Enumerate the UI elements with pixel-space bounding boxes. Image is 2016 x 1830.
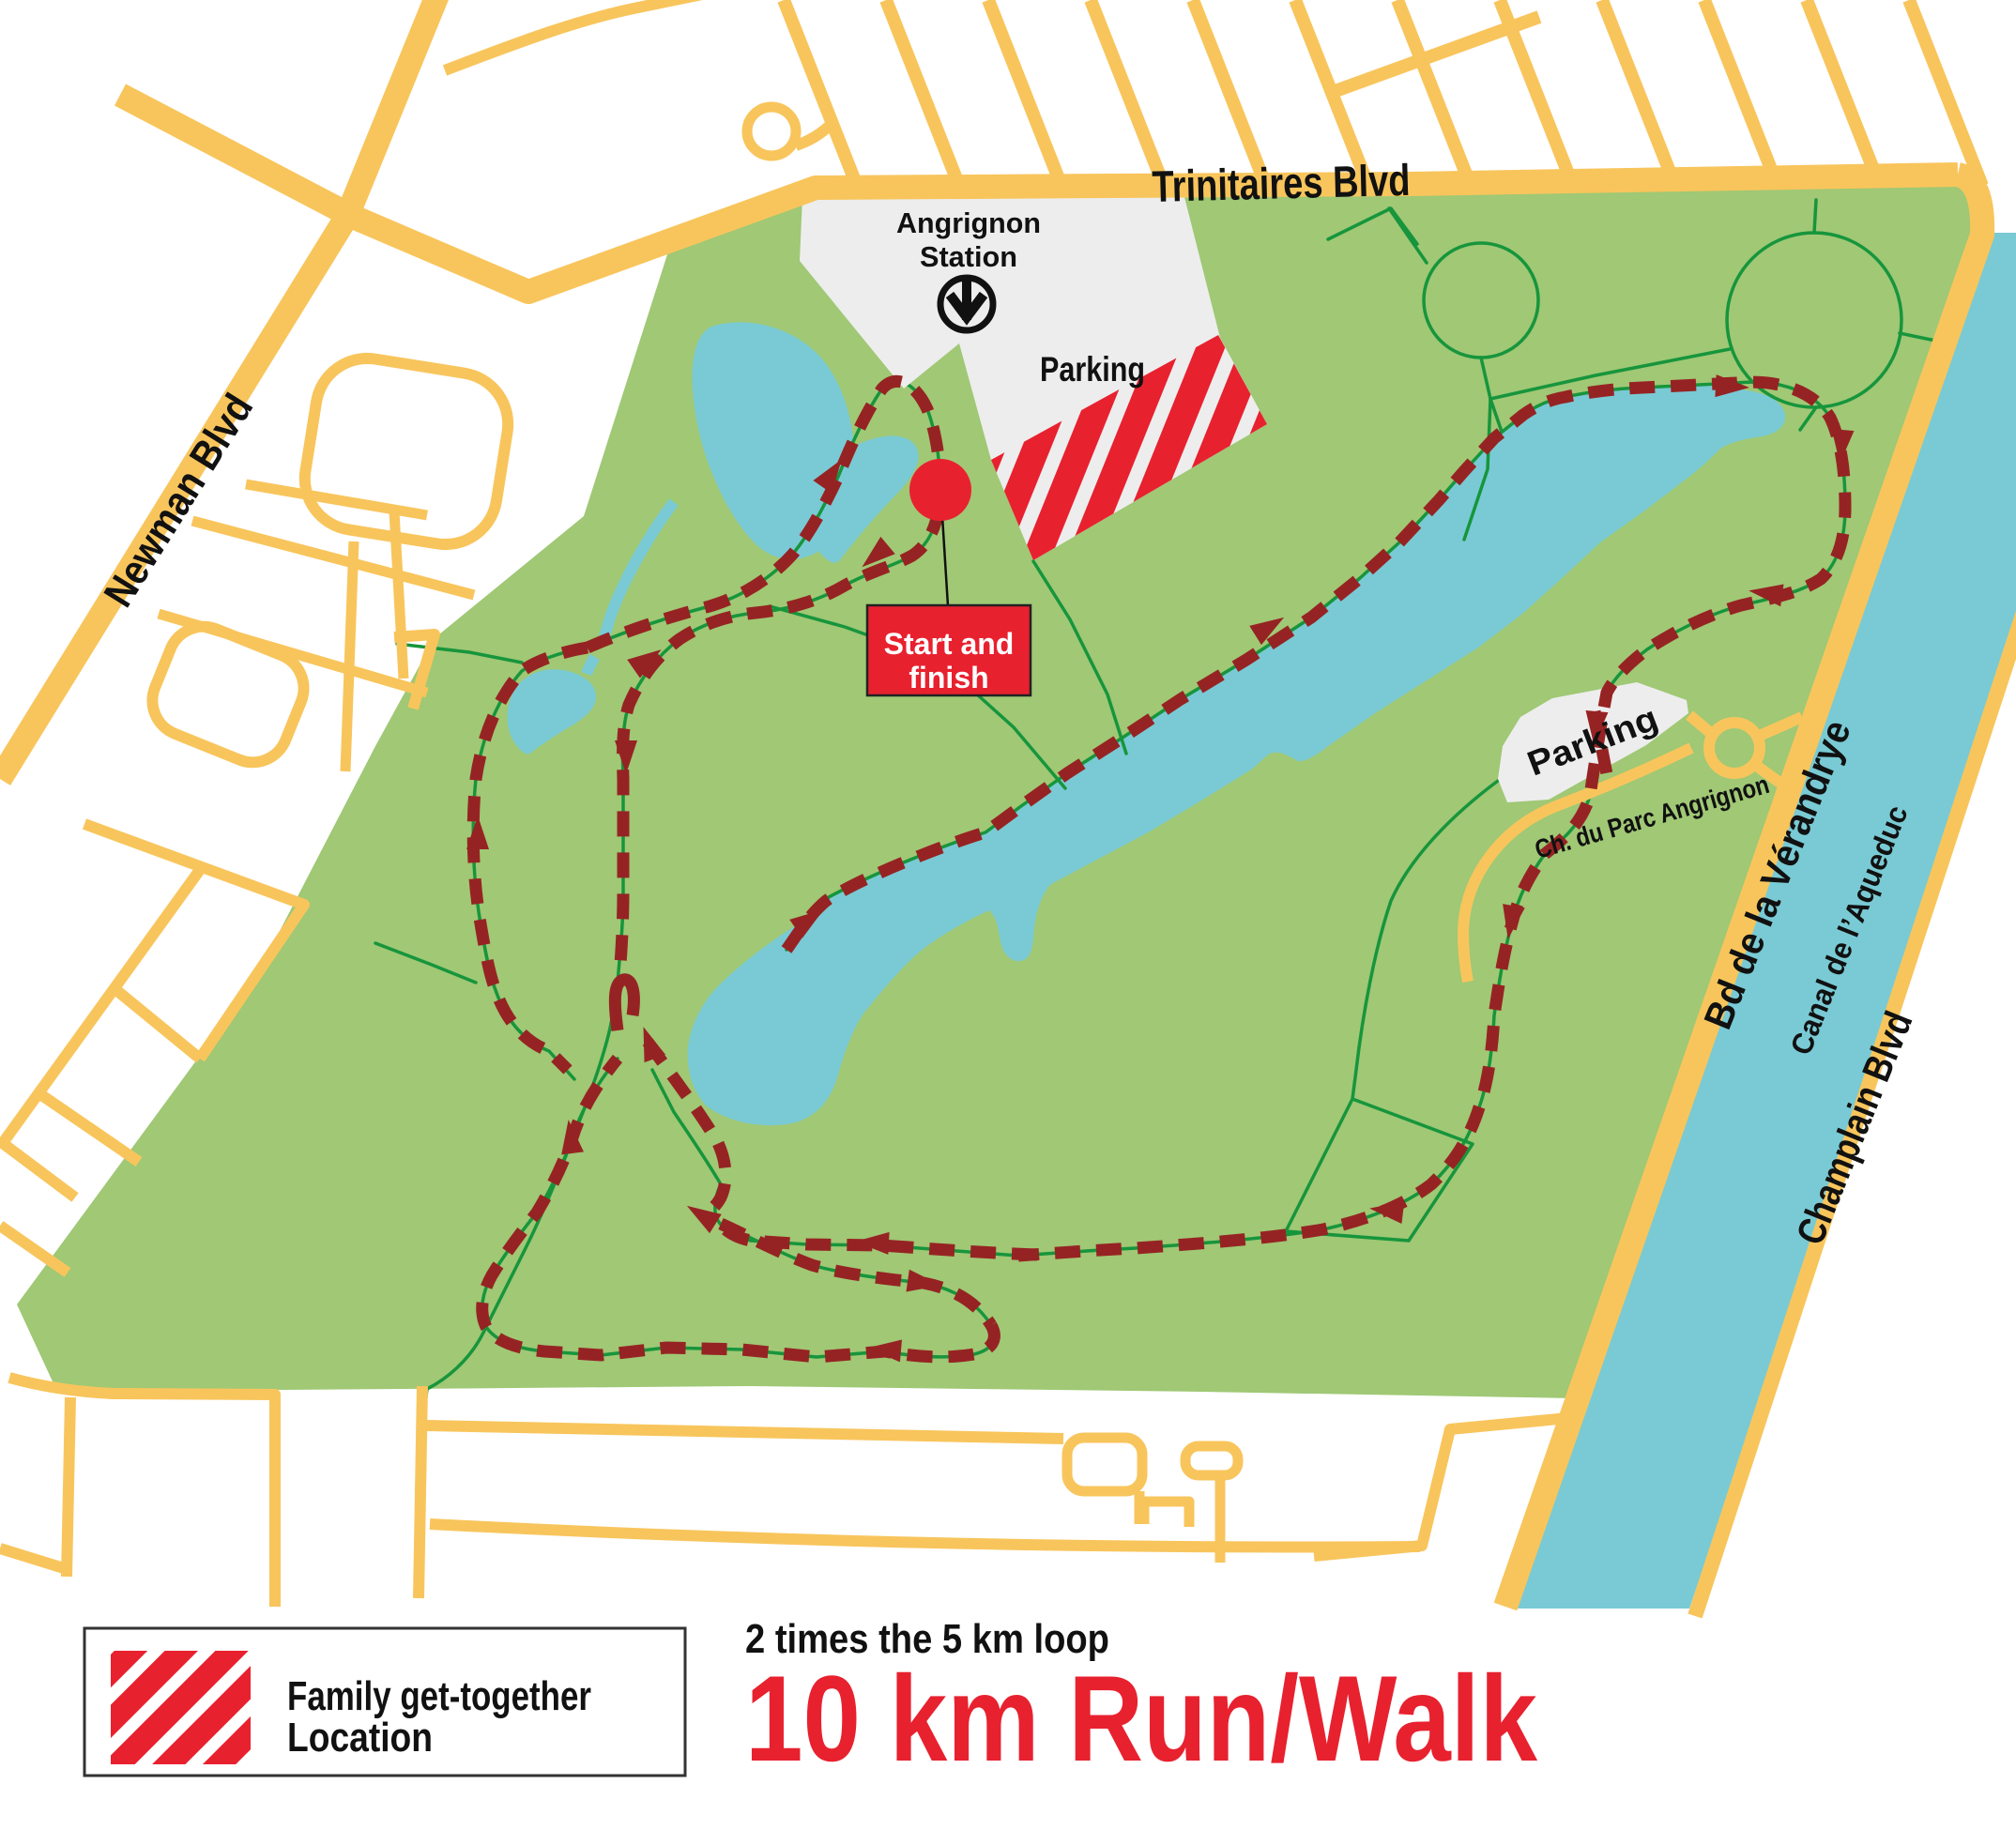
svg-text:Station: Station — [920, 240, 1017, 273]
svg-text:Start and: Start and — [884, 627, 1015, 661]
svg-text:Location: Location — [287, 1715, 433, 1761]
svg-text:10 km Run/Walk: 10 km Run/Walk — [745, 1650, 1538, 1787]
svg-text:Trinitaires Blvd: Trinitaires Blvd — [1152, 155, 1411, 211]
svg-text:Angrignon: Angrignon — [896, 206, 1041, 239]
svg-text:finish: finish — [909, 661, 988, 694]
svg-text:Parking: Parking — [1040, 350, 1145, 389]
svg-text:Family get-together: Family get-together — [287, 1673, 591, 1719]
